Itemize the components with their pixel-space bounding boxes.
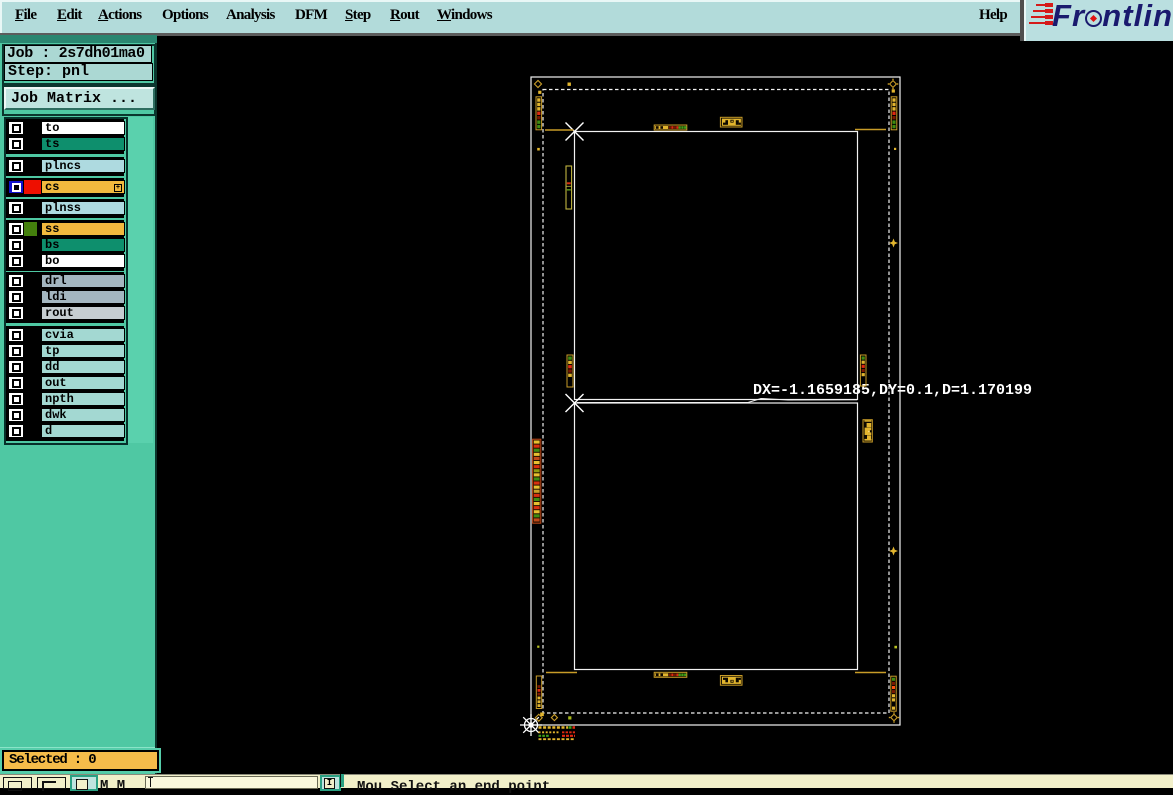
svg-text:DX=-1.1659185,DY=0.1,D=1.17019: DX=-1.1659185,DY=0.1,D=1.170199 xyxy=(753,382,1032,399)
